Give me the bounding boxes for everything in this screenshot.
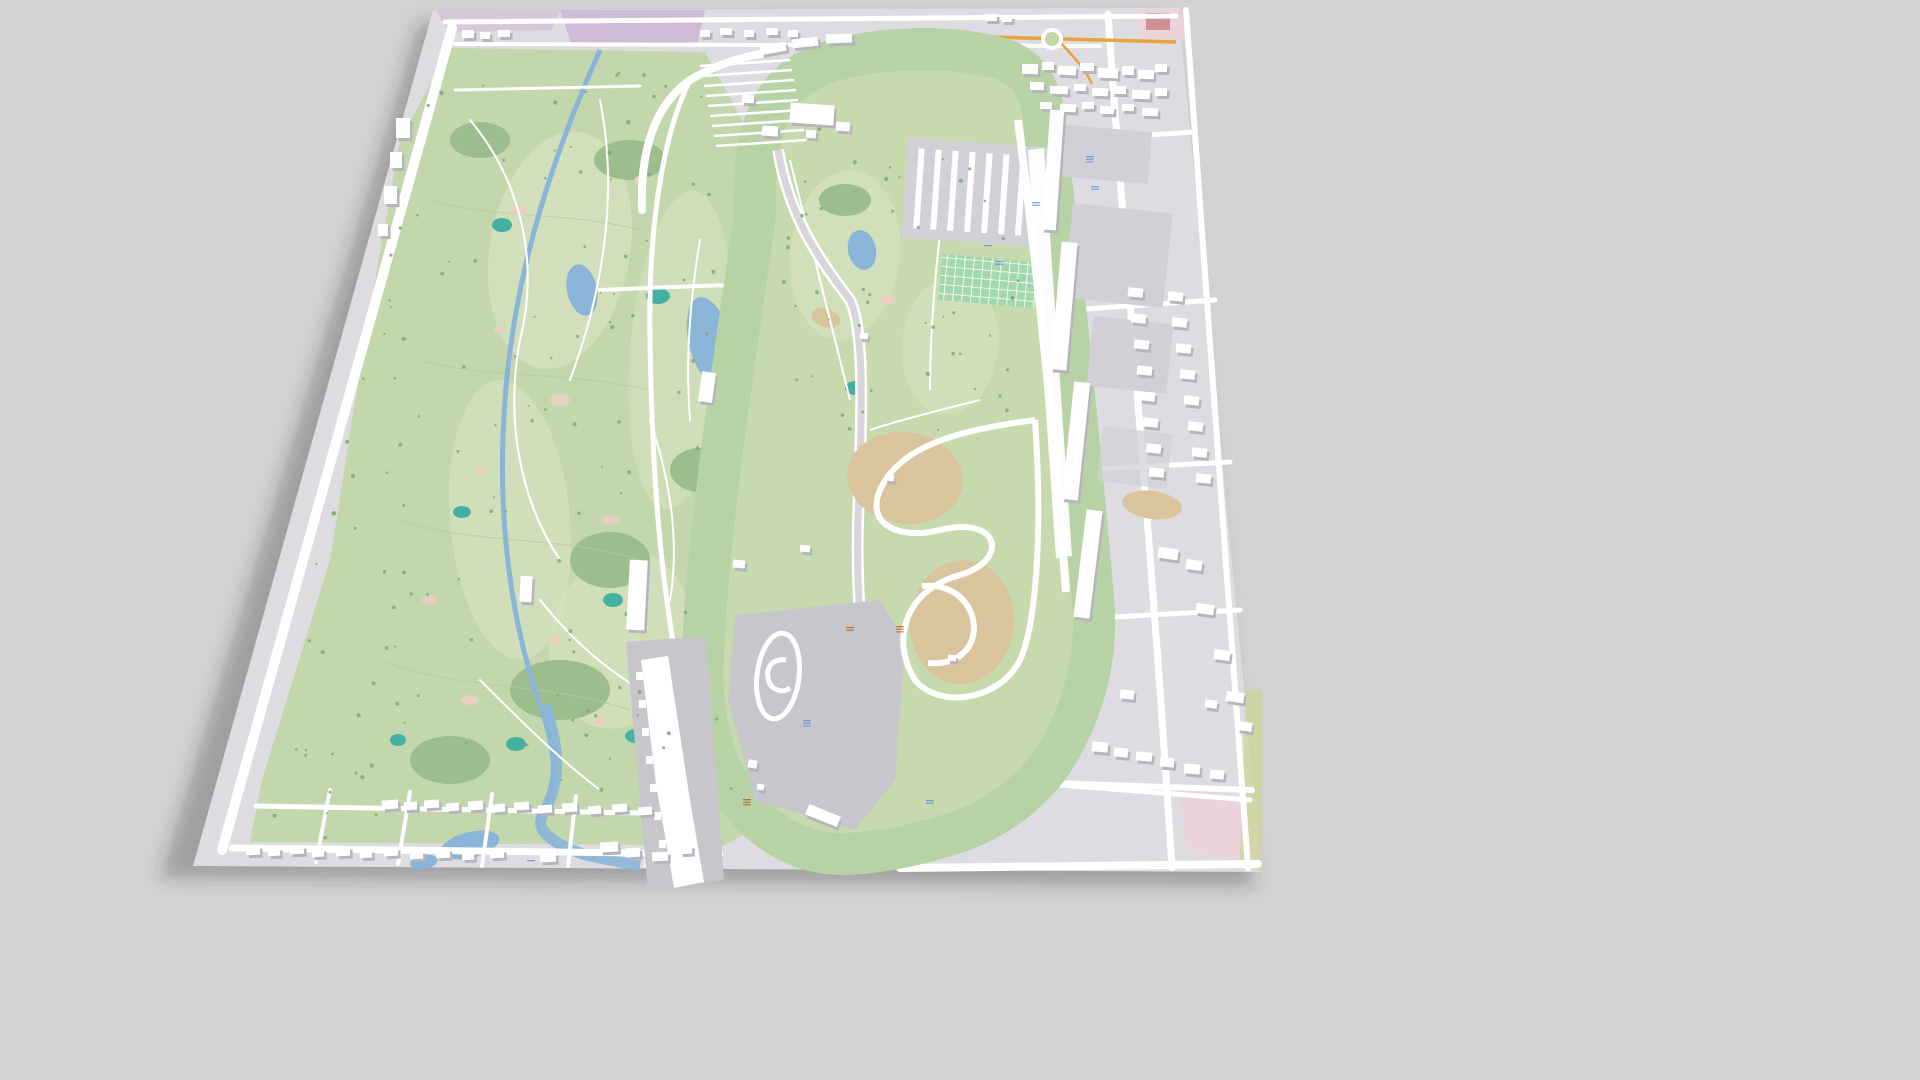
building [1135,751,1154,765]
building [1237,721,1255,735]
building [1092,88,1111,100]
building [1187,421,1206,435]
building [519,576,535,606]
map-marker [743,799,751,805]
building [1175,343,1194,357]
map-canvas [0,0,1920,1080]
building [1195,473,1214,487]
map-marker [896,626,904,632]
building [761,125,780,139]
building [1179,369,1198,383]
building [1183,395,1202,409]
building [1142,108,1161,120]
building [1113,747,1130,760]
building [1139,391,1158,405]
building [1058,66,1079,79]
building [826,33,855,46]
building [1127,287,1146,301]
building [835,122,852,135]
building [1136,365,1155,379]
building [1171,317,1190,331]
building [1098,68,1121,82]
building [1050,86,1071,98]
building [600,841,621,855]
building [1213,649,1233,664]
building [1183,763,1203,778]
building [1185,559,1205,574]
map-marker [1086,156,1094,162]
building [1138,70,1157,83]
building [1142,417,1161,431]
map-marker [527,860,535,861]
building [1145,443,1164,457]
building [626,560,650,634]
building [1091,741,1111,756]
infield-paddock [728,600,905,830]
map-marker [803,720,811,726]
building [1191,447,1210,461]
building [1159,757,1176,770]
map-marker [984,245,992,246]
building [1133,339,1152,353]
building [396,118,413,141]
building [789,102,837,128]
building [1167,291,1186,305]
building [1132,90,1153,103]
building [384,186,400,207]
map-3d-view[interactable]: 3D aerial perspective map — speedway and… [0,0,1920,1080]
green-parking-grid [938,254,1038,308]
building [1148,467,1167,481]
building [1119,689,1137,703]
roundabout [1043,30,1061,48]
building [1209,769,1226,782]
building [1130,313,1149,327]
building [1022,64,1041,78]
